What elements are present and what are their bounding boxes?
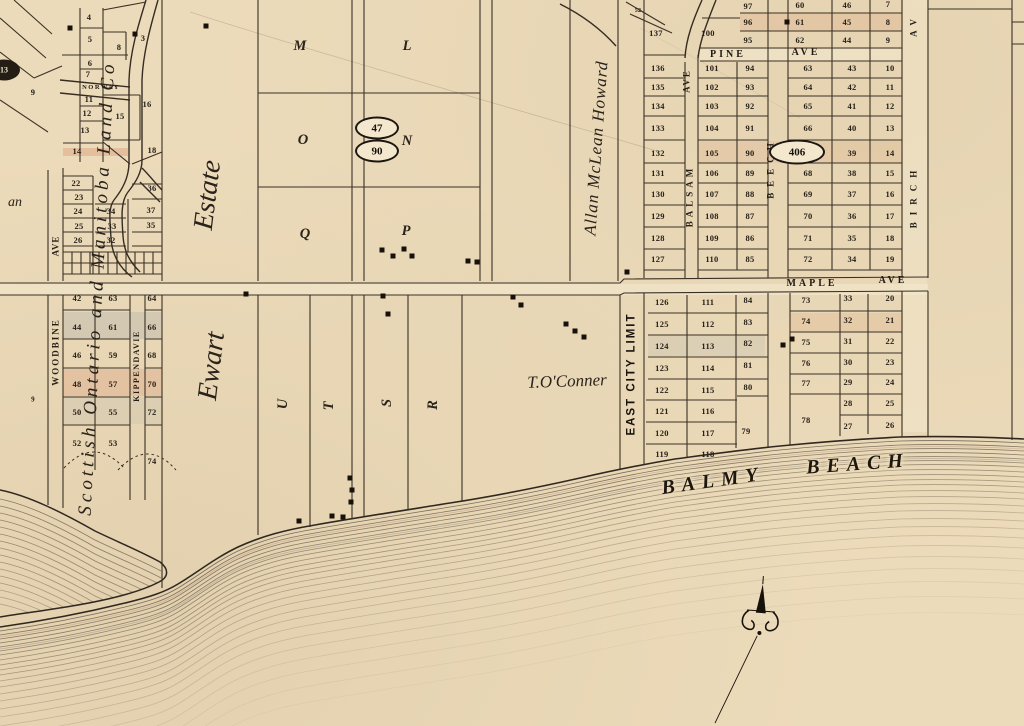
lot-number: 134 [651, 102, 665, 111]
lot-number: 113 [701, 342, 714, 351]
lot-number: 74 [801, 317, 810, 326]
lot-number: 111 [702, 298, 715, 307]
lot-number: 93 [745, 83, 754, 92]
lot-number: 19 [885, 255, 894, 264]
lot-number: 85 [745, 255, 754, 264]
lot-number: 70 [147, 380, 156, 389]
lot-number: 79 [741, 427, 750, 436]
lot-number: 9 [886, 36, 891, 45]
lot-number: 123 [655, 364, 669, 373]
lot-number: 33 [843, 294, 852, 303]
lot-number: 90 [745, 149, 754, 158]
lot-number: 64 [803, 83, 812, 92]
lot-number: 109 [705, 234, 719, 243]
lot-number: 108 [705, 212, 719, 221]
lot-number: 52 [72, 439, 81, 448]
lot-number: 34 [106, 207, 115, 216]
street-label-vertical: AV [910, 13, 919, 37]
lot-number: 132 [651, 149, 665, 158]
lot-number: 61 [108, 323, 117, 332]
lot-number: 23 [885, 358, 894, 367]
lot-number: 24 [885, 378, 894, 387]
estate-owner-label: T.O'Conner [527, 371, 607, 391]
lot-number: 110 [705, 255, 718, 264]
lot-number: 106 [705, 169, 719, 178]
building-footprint [785, 20, 790, 25]
building-footprint [350, 488, 355, 493]
lot-number: 43 [847, 64, 856, 73]
lot-number: 86 [745, 234, 754, 243]
lot-number: 68 [147, 351, 156, 360]
lot-number: 102 [705, 83, 719, 92]
lot-number: 22 [71, 179, 80, 188]
lot-number: 130 [651, 190, 665, 199]
building-footprint [410, 254, 415, 259]
building-footprint [475, 260, 480, 265]
plate-number-oval: 90 [355, 140, 399, 163]
lot-number: 69 [803, 190, 812, 199]
lot-number: 20 [885, 294, 894, 303]
street-label: AVE [792, 48, 821, 58]
lot-number: 12 [82, 109, 91, 118]
building-footprint [564, 322, 569, 327]
lot-number: 52 [635, 8, 642, 14]
lot-number: 129 [651, 212, 665, 221]
lot-number: 12 [885, 102, 894, 111]
lot-number: 44 [842, 36, 851, 45]
lot-number: 18 [885, 234, 894, 243]
lot-number: 126 [655, 298, 669, 307]
street-label-vertical: KIPPENDAVIE [133, 330, 141, 401]
lot-number: 17 [885, 212, 894, 221]
lot-number: 38 [847, 169, 856, 178]
lot-number: 9 [31, 397, 35, 404]
lot-number: 46 [72, 351, 81, 360]
street-label-vertical: AVE [683, 69, 692, 93]
building-footprint [781, 343, 786, 348]
building-footprint [330, 514, 335, 519]
building-footprint [519, 303, 524, 308]
lot-number: 11 [85, 95, 94, 104]
lot-number: 76 [801, 359, 810, 368]
lot-number: 96 [743, 18, 752, 27]
lot-number: 62 [795, 36, 804, 45]
lot-number: 73 [801, 296, 810, 305]
building-footprint [391, 254, 396, 259]
lot-number: 92 [745, 102, 754, 111]
lot-number: 33 [107, 222, 116, 231]
lot-number: 88 [745, 190, 754, 199]
lot-number: 81 [743, 361, 752, 370]
lot-number: 115 [701, 386, 714, 395]
lot-number: 37 [847, 190, 856, 199]
building-footprint [511, 295, 516, 300]
lot-number: 39 [847, 149, 856, 158]
building-footprint [381, 294, 386, 299]
lot-number: 45 [842, 18, 851, 27]
lot-number: 42 [847, 83, 856, 92]
lot-number: 37 [146, 206, 155, 215]
lot-number: 13 [885, 124, 894, 133]
lot-number: 7 [86, 70, 91, 79]
lot-number: 40 [847, 124, 856, 133]
lot-number: 71 [803, 234, 812, 243]
building-footprint [349, 500, 354, 505]
lot-number: 77 [801, 379, 810, 388]
lot-number: 21 [885, 316, 894, 325]
lot-number: 83 [743, 318, 752, 327]
block-letter: S [380, 399, 395, 407]
lot-number: 42 [72, 294, 81, 303]
lot-number: 50 [72, 408, 81, 417]
lot-number: 31 [843, 337, 852, 346]
plat-map: BALMYBEACHPINEAVEMAPLEAVENORWAYWOODBINEA… [0, 0, 1024, 726]
lot-number: 13 [80, 126, 89, 135]
building-footprint [341, 515, 346, 520]
lot-number: 24 [73, 207, 82, 216]
lot-number: 120 [655, 429, 669, 438]
street-label-vertical: WOODBINE [52, 318, 61, 386]
building-footprint [466, 259, 471, 264]
lot-number: 32 [843, 316, 852, 325]
lot-number: 104 [705, 124, 719, 133]
building-footprint [582, 335, 587, 340]
building-footprint [402, 247, 407, 252]
block-letter: L [403, 39, 412, 54]
lot-number: 16 [142, 100, 151, 109]
lot-number: 127 [651, 255, 665, 264]
lot-number: 29 [843, 378, 852, 387]
lot-number: 121 [655, 407, 669, 416]
building-footprint [348, 476, 353, 481]
lot-number: 26 [73, 236, 82, 245]
lot-number: 66 [803, 124, 812, 133]
lot-number: 25 [74, 222, 83, 231]
lot-number: 25 [885, 399, 894, 408]
building-footprint [380, 248, 385, 253]
lot-number: 7 [886, 0, 891, 8]
block-letter: N [402, 134, 412, 149]
lot-number: 36 [147, 184, 156, 193]
lot-number: 14 [72, 147, 81, 156]
plate-number-oval: 406 [769, 140, 825, 165]
building-footprint [244, 292, 249, 297]
lot-number: 28 [843, 399, 852, 408]
lot-number: 35 [847, 234, 856, 243]
lot-number: 128 [651, 234, 665, 243]
building-footprint [625, 270, 630, 275]
shore-bank-hatch [0, 490, 167, 676]
lot-number: 84 [743, 296, 752, 305]
lot-number: 34 [847, 255, 856, 264]
street-label: AVE [879, 276, 908, 286]
lot-number: 15 [115, 112, 124, 121]
lot-number: 16 [885, 190, 894, 199]
street-label: MAPLE [786, 279, 837, 289]
block-letter: P [402, 224, 411, 239]
lot-number: 94 [745, 64, 754, 73]
lot-number: 114 [701, 364, 714, 373]
lot-number: 75 [801, 338, 810, 347]
lot-number: 119 [655, 450, 668, 459]
lot-number: 6 [88, 59, 93, 68]
lot-number: 72 [803, 255, 812, 264]
lot-number: 14 [885, 149, 894, 158]
lot-number: 137 [649, 29, 663, 38]
lot-number: 136 [651, 64, 665, 73]
lot-number: 15 [885, 169, 894, 178]
lot-number: 91 [745, 124, 754, 133]
lot-number: 135 [651, 83, 665, 92]
lot-number: 103 [705, 102, 719, 111]
lot-number: 112 [701, 320, 714, 329]
map-linework [0, 0, 1024, 726]
lot-number: 9 [31, 88, 36, 97]
block-letter: O [298, 133, 308, 148]
lot-number: 68 [803, 169, 812, 178]
lot-number: 66 [147, 323, 156, 332]
lot-number: 4 [87, 13, 92, 22]
lot-number: 27 [843, 422, 852, 431]
lot-number: 11 [886, 83, 895, 92]
lot-number: 10 [885, 64, 894, 73]
lot-number: 18 [147, 146, 156, 155]
street-label-vertical: BALSAM [686, 165, 695, 228]
lot-number: 116 [701, 407, 714, 416]
lot-number: 30 [843, 358, 852, 367]
lot-number: 95 [743, 36, 752, 45]
lot-number: 82 [743, 339, 752, 348]
building-footprint [68, 26, 73, 31]
lot-number: 63 [803, 64, 812, 73]
lot-number: 133 [651, 124, 665, 133]
lot-number: 89 [745, 169, 754, 178]
lot-number: 65 [803, 102, 812, 111]
lot-number: 35 [146, 221, 155, 230]
lot-number: 3 [141, 34, 146, 43]
building-footprint [204, 24, 209, 29]
lot-number: 5 [88, 35, 93, 44]
lot-number: 78 [801, 416, 810, 425]
lot-number: 61 [795, 18, 804, 27]
lot-number: 8 [117, 43, 122, 52]
lot-number: 80 [743, 383, 752, 392]
lot-number: 74 [147, 457, 156, 466]
building-footprint [790, 337, 795, 342]
lot-number: 48 [72, 380, 81, 389]
lot-number: 124 [655, 342, 669, 351]
lot-number: 101 [705, 64, 719, 73]
lot-number: 118 [701, 450, 714, 459]
lot-number: 131 [651, 169, 665, 178]
street-label-vertical: BIRCH [910, 164, 919, 229]
building-footprint [133, 32, 138, 37]
lot-number: 32 [106, 236, 115, 245]
lot-number: 44 [72, 323, 81, 332]
lot-number: 87 [745, 212, 754, 221]
block-letter: T [322, 402, 337, 411]
lot-number: 57 [108, 380, 117, 389]
lot-number: 22 [885, 337, 894, 346]
lot-number: 97 [743, 2, 752, 11]
lot-number: 55 [108, 408, 117, 417]
lot-number: 36 [847, 212, 856, 221]
estate-owner-label: an [8, 196, 22, 210]
block-letter: Q [300, 227, 310, 242]
lot-number: 46 [842, 1, 851, 10]
block-letter: R [426, 400, 441, 410]
lot-number: 122 [655, 386, 669, 395]
street-label-vertical: AVE [52, 236, 61, 257]
lot-number: 63 [108, 294, 117, 303]
lot-number: 59 [108, 351, 117, 360]
street-label-vertical: EAST CITY LIMIT [626, 312, 638, 435]
lot-number: 70 [803, 212, 812, 221]
street-label: PINE [710, 50, 746, 60]
compass-needle-icon [715, 573, 781, 726]
lot-number: 26 [885, 421, 894, 430]
lot-number: 53 [108, 439, 117, 448]
building-footprint [297, 519, 302, 524]
block-letter: M [294, 39, 307, 54]
lot-number: 105 [705, 149, 719, 158]
block-letter: U [276, 399, 291, 409]
building-footprint [573, 329, 578, 334]
lot-number: 64 [147, 294, 156, 303]
lot-number: 117 [701, 429, 714, 438]
plate-number-oval: 47 [355, 117, 399, 140]
lot-number: 41 [847, 102, 856, 111]
lot-number: 72 [147, 408, 156, 417]
lot-number: 23 [74, 193, 83, 202]
lot-number: 8 [886, 18, 891, 27]
lot-number: 100 [701, 29, 715, 38]
lot-number: 60 [795, 1, 804, 10]
lot-number: 125 [655, 320, 669, 329]
building-footprint [386, 312, 391, 317]
lot-number: 107 [705, 190, 719, 199]
